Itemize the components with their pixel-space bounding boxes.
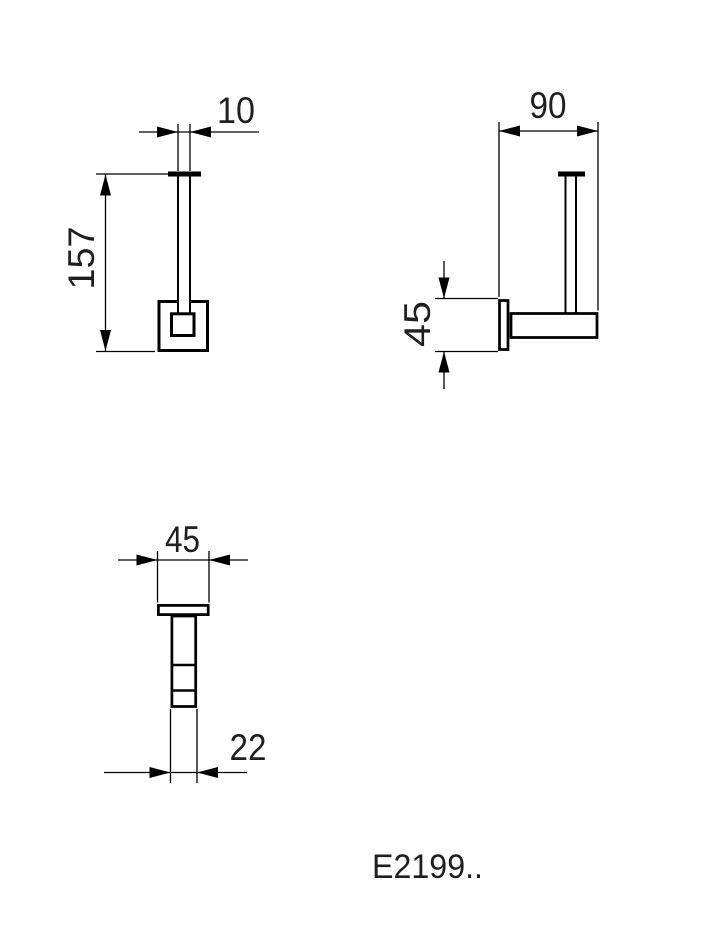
side-rod-cap (558, 172, 585, 177)
plan-dim-plate-width-label: 45 (165, 519, 200, 560)
side-rod-fill (566, 177, 577, 314)
front-rod-fill (178, 177, 190, 314)
technical-drawing: 10 157 90 (0, 0, 701, 930)
side-wall-plate (500, 301, 509, 350)
front-rod-cap (168, 172, 201, 177)
product-code: E2199.. (372, 848, 483, 886)
plan-dim-arm-width-label: 22 (230, 727, 267, 768)
side-arm (511, 314, 597, 338)
side-dim-plate-label: 45 (397, 301, 438, 347)
front-dim-height-label: 157 (61, 227, 102, 290)
canvas-background (0, 0, 701, 930)
plan-wall-plate (158, 605, 208, 614)
plan-arm (172, 616, 196, 707)
side-dim-depth-label: 90 (530, 85, 567, 126)
front-wall-plate-inner (172, 314, 195, 336)
front-dim-diameter-label: 10 (217, 90, 255, 131)
